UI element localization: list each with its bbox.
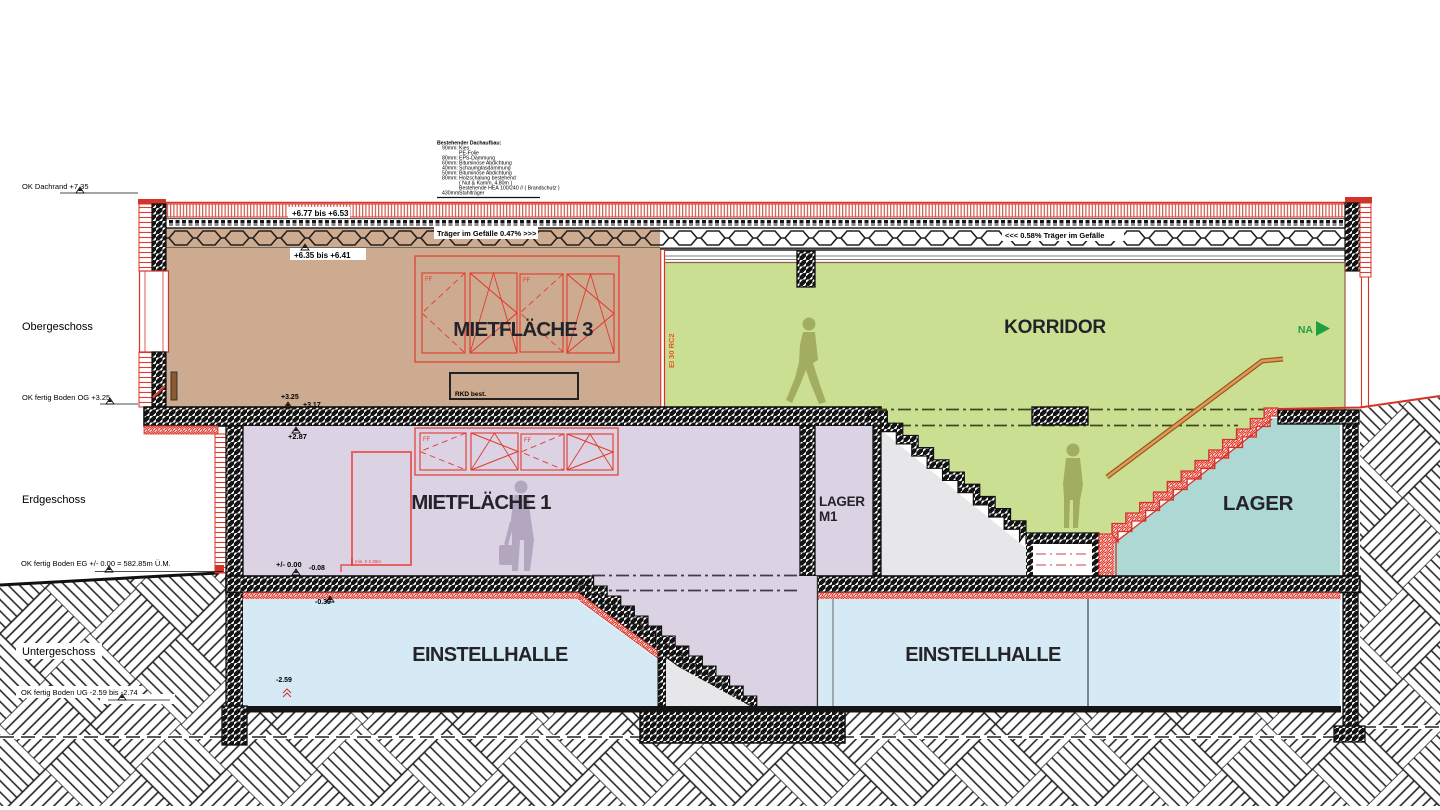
svg-text:OK fertig Boden UG -2.59 bis -: OK fertig Boden UG -2.59 bis -2.74 xyxy=(21,688,138,697)
svg-text:FF: FF xyxy=(423,437,431,443)
svg-text:FF: FF xyxy=(524,438,532,444)
svg-text:EI 30 RC2: EI 30 RC2 xyxy=(667,333,676,368)
svg-text:Obergeschoss: Obergeschoss xyxy=(22,321,93,333)
svg-text:+/- 0.00: +/- 0.00 xyxy=(276,560,302,569)
svg-text:+2.87: +2.87 xyxy=(288,432,307,441)
svg-text:430mm:: 430mm: xyxy=(442,191,461,197)
svg-text:RKD best.: RKD best. xyxy=(455,391,486,398)
svg-text:+3.25: +3.25 xyxy=(281,394,299,401)
svg-text:80mm:: 80mm: xyxy=(442,176,458,182)
svg-text:EINSTELLHALLE: EINSTELLHALLE xyxy=(905,644,1061,666)
svg-text:LAGER: LAGER xyxy=(819,494,865,509)
svg-text:OK fertig Boden EG +/- 0.00 =: OK fertig Boden EG +/- 0.00 = 582.85m Ü.… xyxy=(21,559,171,568)
svg-text:Träger im Gefälle 0.47% >>>: Träger im Gefälle 0.47% >>> xyxy=(437,229,537,238)
svg-text:Untergeschoss: Untergeschoss xyxy=(22,646,96,658)
svg-text:+6.77 bis +6.53: +6.77 bis +6.53 xyxy=(292,209,349,218)
svg-text:<<< 0.58% Träger im Gefälle: <<< 0.58% Träger im Gefälle xyxy=(1005,231,1104,240)
svg-text:Stahlträger: Stahlträger xyxy=(459,191,485,197)
svg-text:EINSTELLHALLE: EINSTELLHALLE xyxy=(412,644,568,666)
svg-text:+3.17: +3.17 xyxy=(303,402,321,409)
svg-text:90mm:: 90mm: xyxy=(442,146,458,152)
svg-text:FF: FF xyxy=(523,278,531,284)
svg-text:LAGER: LAGER xyxy=(1223,492,1294,515)
svg-text:Erdgeschoss: Erdgeschoss xyxy=(22,494,86,506)
svg-text:FF: FF xyxy=(425,277,433,283)
svg-text:+6.35 bis +6.41: +6.35 bis +6.41 xyxy=(294,251,351,260)
svg-text:KORRIDOR: KORRIDOR xyxy=(1004,317,1106,338)
svg-text:-0.08: -0.08 xyxy=(309,565,325,572)
svg-text:-0.39: -0.39 xyxy=(315,599,331,606)
svg-text:MIETFLÄCHE 1: MIETFLÄCHE 1 xyxy=(411,491,551,514)
svg-text:-2.59: -2.59 xyxy=(276,677,292,684)
svg-text:OK fertig Boden OG +3.25: OK fertig Boden OG +3.25 xyxy=(22,393,110,402)
svg-text:M1: M1 xyxy=(819,509,838,524)
svg-text:MIETFLÄCHE 3: MIETFLÄCHE 3 xyxy=(453,318,593,341)
svg-text:min. h 2.30m: min. h 2.30m xyxy=(355,559,381,564)
svg-text:NA: NA xyxy=(1298,324,1314,336)
